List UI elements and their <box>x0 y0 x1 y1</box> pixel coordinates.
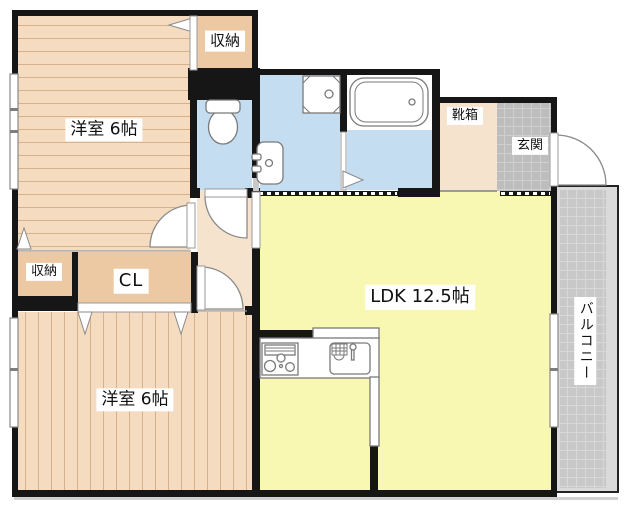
toilet-bowl <box>209 110 238 144</box>
window <box>10 318 18 427</box>
wall-segment <box>252 247 260 497</box>
wall-segment <box>252 330 313 338</box>
hallway-ldk-sliding-door <box>252 192 260 248</box>
entrance-door-arc <box>556 135 606 185</box>
wall-segment <box>252 10 258 72</box>
washer-pan <box>303 76 340 113</box>
west-room-bottom-door-leaf <box>197 266 205 310</box>
label-ldk: LDK 12.5帖 <box>365 285 475 310</box>
wall-segment <box>252 69 440 75</box>
wall-segment <box>370 445 378 497</box>
room-fills <box>18 16 551 490</box>
bathtub-outer <box>350 78 428 126</box>
wall-segment <box>12 10 18 74</box>
label-closet-top: 収納 <box>205 31 245 52</box>
stove-burner <box>286 363 295 372</box>
faucet-head <box>350 344 356 350</box>
washer-pan-fixture <box>303 76 340 113</box>
label-shoe-box: 靴箱 <box>447 107 483 125</box>
washer-drain <box>325 90 333 98</box>
label-closet-cl: CL <box>114 269 149 294</box>
bathtub-drain <box>409 99 415 105</box>
window-divider <box>550 368 558 371</box>
wall-segment <box>188 68 260 100</box>
wall-segment <box>72 252 78 296</box>
bathtub-fixture <box>350 78 428 126</box>
washbasin-tap <box>252 166 261 172</box>
label-entrance: 玄関 <box>512 137 548 155</box>
label-west-room-bottom: 洋室 6帖 <box>96 388 173 411</box>
window-divider <box>10 108 18 111</box>
washbasin-tap <box>252 154 261 160</box>
threshold-line <box>18 250 191 252</box>
label-balcony: バルコニー <box>574 297 596 385</box>
toilet-fixture <box>206 100 240 144</box>
wall-segment <box>12 10 258 16</box>
wall-segment <box>432 97 557 103</box>
stove-knob <box>280 365 283 368</box>
entrance-door-leaf <box>550 133 558 186</box>
drop-shadow <box>14 497 618 500</box>
wall-segment <box>551 97 557 137</box>
wall-segment <box>551 184 557 314</box>
wall-segment <box>551 427 557 497</box>
cl-closet-doors <box>78 303 191 312</box>
washbasin-drain <box>266 160 273 167</box>
window-divider <box>10 130 18 133</box>
kitchen-partition <box>370 377 379 446</box>
label-closet-left: 収納 <box>26 263 62 281</box>
window-divider <box>10 368 18 371</box>
wall-segment <box>190 100 197 190</box>
west-room-top-door-leaf <box>187 203 195 248</box>
wall-segment <box>190 188 200 198</box>
wall-segment <box>245 306 260 315</box>
wall-segment <box>432 69 440 190</box>
closet-top-door-leaf <box>190 16 197 70</box>
entrance-step-line <box>440 190 497 192</box>
washbasin-fixture <box>252 142 283 184</box>
toilet-tank <box>206 100 240 113</box>
wall-segment <box>398 188 440 197</box>
wall-segment <box>12 427 18 497</box>
wall-segment <box>12 296 78 311</box>
stove-burner <box>277 354 285 362</box>
floor-plan-drawing <box>0 0 640 505</box>
wall-segment <box>12 490 557 497</box>
wall-segment <box>340 75 347 132</box>
stove-burner <box>265 361 276 372</box>
toilet-door-leaf <box>205 189 247 197</box>
label-west-room-top: 洋室 6帖 <box>65 118 142 141</box>
floor-plan: 洋室 6帖 収納 収納 CL 洋室 6帖 LDK 12.5帖 靴箱 玄関 バルコ… <box>0 0 640 505</box>
